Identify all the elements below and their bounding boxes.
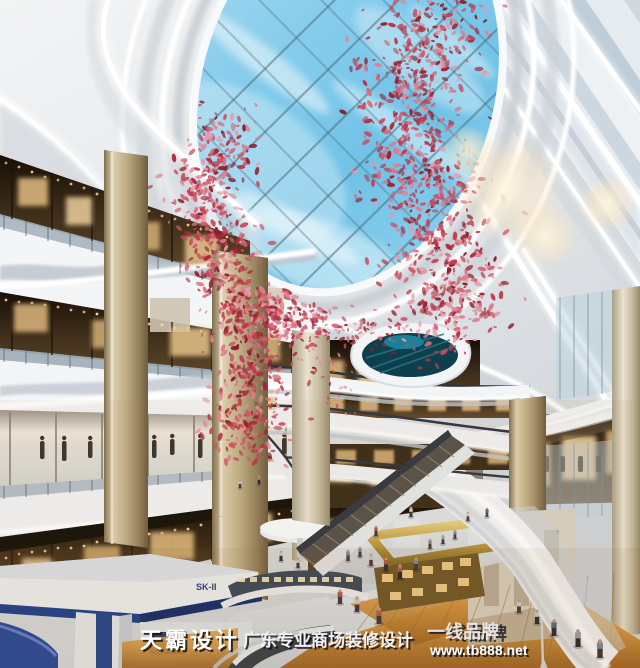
svg-text:一线品牌: 一线品牌 (427, 621, 499, 642)
svg-text:天霸设计: 天霸设计 (140, 628, 240, 653)
svg-text:广东专业商场装修设计: 广东专业商场装修设计 (243, 630, 413, 650)
svg-text:www.tb888.net: www.tb888.net (429, 642, 528, 658)
